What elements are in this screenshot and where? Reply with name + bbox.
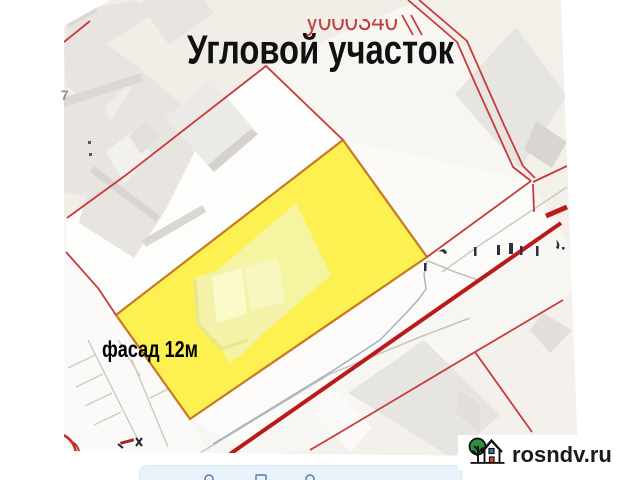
svg-text:7: 7 bbox=[61, 88, 69, 103]
svg-text:фасад 12м: фасад 12м bbox=[102, 336, 198, 362]
svg-text:Угловой участок: Угловой участок bbox=[187, 27, 454, 73]
